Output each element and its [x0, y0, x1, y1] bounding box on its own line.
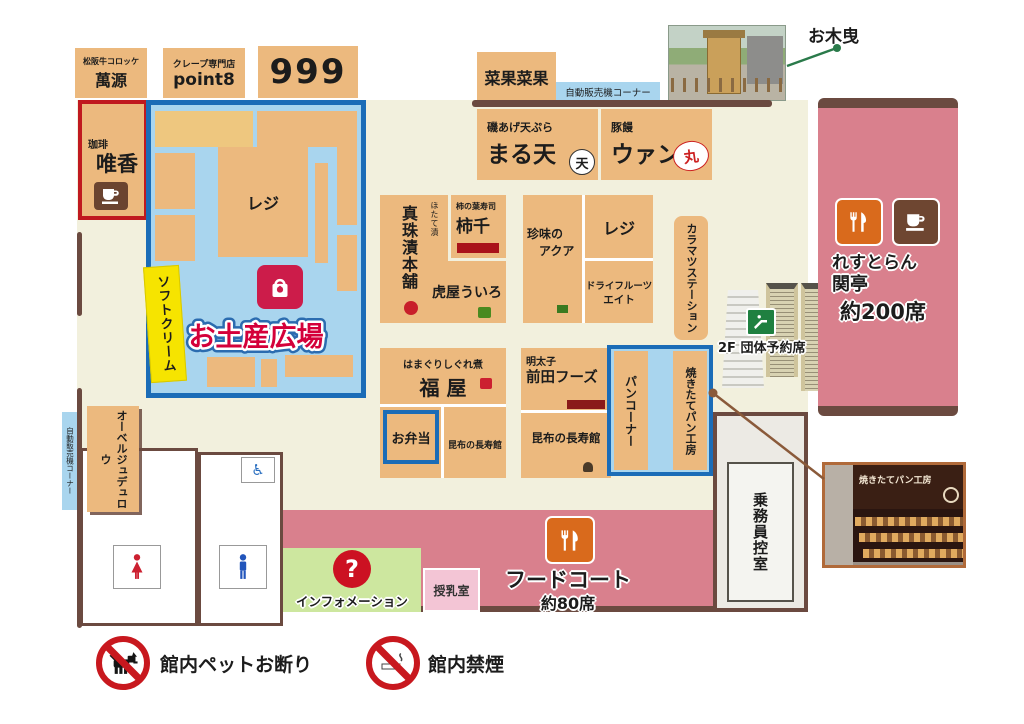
fukuya-logo	[480, 378, 492, 389]
shop-mangen: 松阪牛コロッケ 萬源	[75, 48, 147, 98]
male-icon	[232, 552, 254, 582]
plaza-block	[155, 215, 195, 261]
plaza-block	[155, 153, 195, 209]
plaza-register: レジ	[218, 147, 308, 257]
shop-dryfruits: ドライフルーツ エイト	[585, 261, 653, 323]
shop-saikasaika-name: 菜果菜果	[484, 65, 548, 89]
shop-fukuya-sub: はまぐりしぐれ煮	[380, 356, 506, 371]
shop-mangen-name: 萬源	[95, 67, 127, 91]
center-register: レジ	[585, 195, 653, 258]
shop-maeda: 明太子 前田フーズ 昆布の長寿館	[521, 348, 611, 478]
shop-yuika-name: 唯香	[96, 148, 138, 178]
vending-corner-left-label: 自動販売機コーナー	[65, 427, 76, 495]
wall	[77, 388, 82, 628]
shop-kakisen: 柿の葉寿司 柿千	[451, 195, 506, 258]
bread-section: パンコーナー 焼きたてパン工房	[607, 345, 713, 476]
no-smoking-label: 館内禁煙	[428, 650, 504, 677]
crew-room-box: 乗務員控室	[727, 462, 794, 602]
bakery-shelf	[855, 517, 966, 526]
coffee-cup-icon	[94, 182, 128, 210]
bakery-wall	[825, 465, 853, 568]
karamatsu-label: カラマツステーション	[683, 223, 699, 333]
plaza-block	[337, 235, 357, 291]
toraya-logo	[478, 307, 491, 318]
crew-room-label: 乗務員控室	[750, 492, 771, 572]
shop-auberge: オーベルジュデュロウ	[87, 406, 139, 512]
shop-maeda-name: 前田フーズ	[526, 366, 598, 387]
shop-shinjuzuke-sub: ほたて漬	[429, 201, 440, 237]
wheelchair-icon: ♿	[251, 463, 264, 478]
restaurant-seats: 約200席	[840, 296, 926, 326]
kombu-logo	[583, 462, 593, 472]
no-smoking-sign	[366, 636, 420, 690]
escalator-icon	[751, 312, 771, 332]
obento-label: お弁当	[391, 428, 430, 447]
kombu-chojukan-2: 昆布の長寿館	[521, 414, 611, 462]
no-pets-sign	[96, 636, 150, 690]
pan-corner-label: パンコーナー	[623, 375, 640, 447]
plaza-block	[285, 355, 353, 377]
bakery-sign-text: 焼きたてパン工房	[859, 473, 931, 486]
shop-point8-name: point8	[173, 70, 235, 90]
toilet-room-male: ♿	[198, 452, 283, 626]
shop-maruten: 磯あげ天ぷら まる天 天	[477, 109, 598, 180]
escalator-label: 2F 団体予約席	[718, 337, 805, 356]
shop-yuika: 珈琲 唯香	[78, 100, 148, 220]
plaza-block	[261, 359, 277, 387]
wall	[77, 232, 82, 316]
softcream-label: ソフトクリーム	[152, 274, 178, 373]
shop-kakisen-sub: 柿の葉寿司	[456, 201, 496, 212]
escalator-sign	[746, 308, 776, 336]
plaza-block	[337, 131, 357, 225]
vending-corner-left: 自動販売機コーナー	[62, 412, 78, 510]
karamatsu-station: カラマツステーション	[674, 216, 708, 340]
information-label: インフォメーション	[283, 591, 421, 610]
bakery-floor	[853, 562, 966, 568]
shop-toraya-name: 虎屋ういろ	[432, 282, 502, 302]
center-shop-block: 珍味の アクア レジ ドライフルーツ エイト	[523, 195, 653, 323]
okihiki-roof	[703, 30, 745, 38]
bakery-shelf	[859, 533, 966, 542]
shop-maruten-name: まる天	[487, 135, 556, 169]
shop-saikasaika: 菜果菜果	[477, 52, 556, 101]
restaurant-name-line2: 関亭	[832, 270, 868, 296]
shop-auberge-label: オーベルジュデュロウ	[97, 406, 129, 512]
bakery-shelf	[863, 549, 966, 558]
maeda-logo	[567, 400, 605, 409]
maruten-logo: 天	[569, 149, 595, 175]
nursing-room: 授乳室	[423, 568, 480, 612]
plaza-block	[155, 111, 253, 147]
plaza-register-label: レジ	[247, 190, 279, 214]
bakery-logo-circle	[943, 487, 959, 503]
shop-point8-sub: クレープ専門店	[173, 57, 235, 70]
plaza-block	[315, 163, 328, 263]
shop-wan-sub: 豚饅	[611, 119, 633, 135]
foodcourt-icon	[545, 516, 595, 564]
shop-maruten-sub: 磯あげ天ぷら	[487, 119, 553, 135]
souvenir-plaza-title: お土産広場 お土産広場 お土産広場	[166, 315, 346, 357]
information-box: ? インフォメーション	[283, 548, 421, 612]
divider	[521, 410, 611, 413]
shop-point8: クレープ専門店 point8	[163, 48, 245, 98]
vending-corner-top: 自動販売機コーナー	[556, 82, 660, 102]
wheelchair-sign: ♿	[241, 457, 275, 483]
fork-knife-icon	[835, 198, 883, 246]
obento-box: お弁当	[383, 410, 439, 464]
pan-factory-strip: 焼きたてパン工房	[673, 351, 707, 470]
pan-factory-label: 焼きたてパン工房	[682, 367, 698, 455]
svg-text:お土産広場: お土産広場	[189, 321, 324, 353]
bakery-photo: 焼きたてパン工房	[822, 462, 966, 568]
foodcourt-seats: 約80席	[468, 590, 668, 614]
restaurant-block: れすとらん 関亭 約200席	[818, 98, 958, 416]
floor-map: 松阪牛コロッケ 萬源 クレープ専門店 point8 999 菜果菜果 自動販売機…	[0, 0, 1024, 724]
shop-wan: 豚饅 ウァン 丸	[601, 109, 712, 180]
shop-999: 999	[258, 46, 358, 98]
shop-aqua: 珍味の アクア	[523, 225, 582, 259]
pan-corner-strip: パンコーナー	[614, 351, 648, 470]
shop-shinjuzuke-name: 真珠漬本舗	[396, 205, 420, 290]
okihiki-building	[747, 36, 783, 84]
cafe-icon	[892, 198, 940, 246]
shop-mangen-sub: 松阪牛コロッケ	[83, 56, 139, 67]
vending-corner-top-label: 自動販売機コーナー	[565, 85, 651, 99]
aqua-logo	[557, 305, 568, 313]
shop-999-name: 999	[270, 52, 347, 92]
kombu-chojukan-1: 昆布の長寿館	[444, 410, 506, 478]
okihiki-label: お木曳	[808, 22, 859, 47]
question-mark-icon: ?	[333, 550, 371, 588]
okihiki-fence	[671, 78, 783, 92]
shop-fukuya: はまぐりしぐれ煮 福 屋 お弁当 昆布の長寿館	[380, 348, 506, 478]
no-pets-label: 館内ペットお断り	[160, 650, 312, 677]
plaza-block	[207, 357, 255, 387]
kakisen-logo	[457, 243, 499, 253]
top-wall-bar	[472, 100, 772, 107]
male-sign	[219, 545, 267, 589]
shinjuzuke-logo	[404, 301, 418, 315]
female-icon	[126, 552, 148, 582]
okihiki-photo	[668, 25, 786, 101]
shop-toraya: 虎屋ういろ	[428, 261, 506, 323]
female-sign	[113, 545, 161, 589]
crew-room-area: 乗務員控室	[713, 412, 808, 612]
shopping-bag-icon	[257, 265, 303, 309]
nursing-room-label: 授乳室	[433, 582, 469, 599]
shop-wan-name: ウァン	[611, 135, 680, 169]
shop-kakisen-name: 柿千	[456, 212, 490, 237]
